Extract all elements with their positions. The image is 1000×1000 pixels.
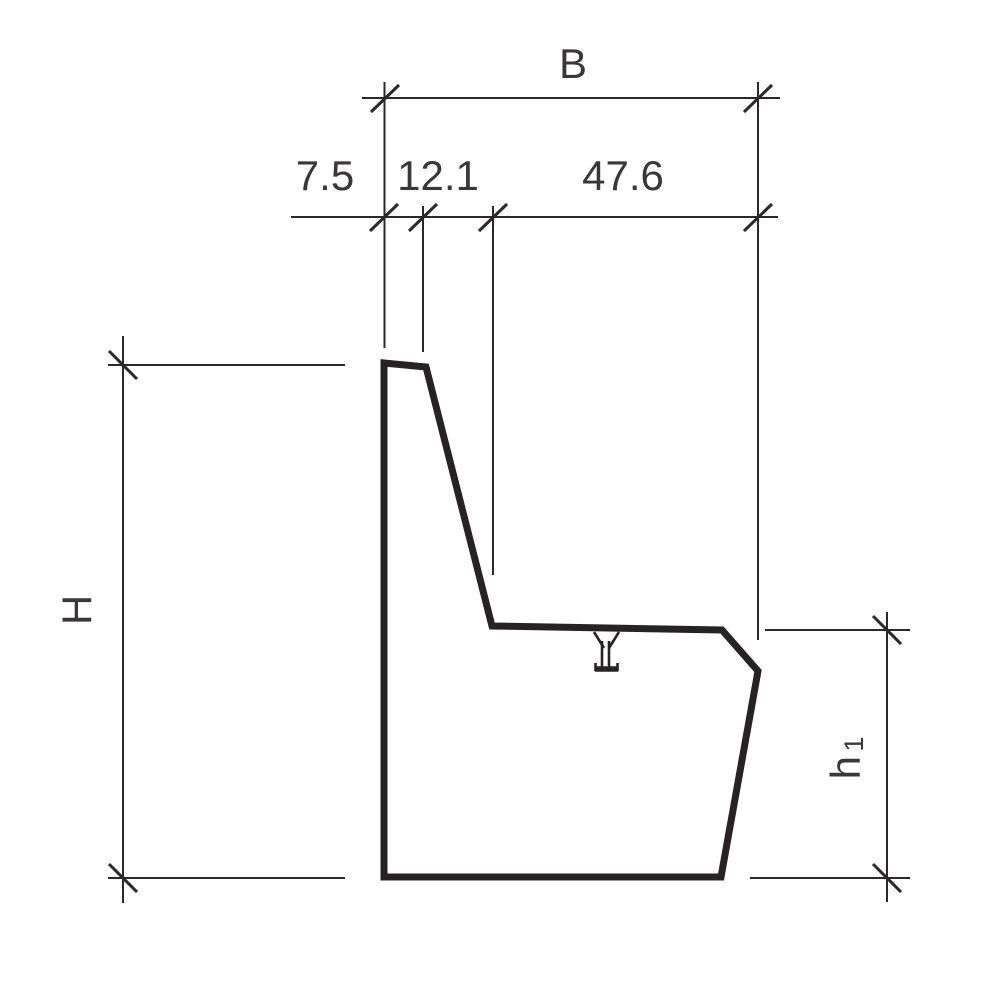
dim-value-segment-1: 7.5 xyxy=(296,152,354,199)
dimension-total-height: H xyxy=(54,336,346,903)
element-profile-group xyxy=(384,363,758,877)
anchor-leg-right-icon xyxy=(609,632,619,648)
dim-value-segment-2: 12.1 xyxy=(397,152,479,199)
anchor-symbol xyxy=(594,632,619,671)
dim-label-seat-height-base: h xyxy=(822,756,869,779)
dim-label-seat-height: h 1 xyxy=(822,737,870,780)
dimension-seat-height: h 1 xyxy=(750,612,910,902)
dim-value-segment-3: 47.6 xyxy=(582,152,664,199)
drawing-canvas: B 7.5 12.1 47.6 H xyxy=(0,0,1000,1000)
profile-outline xyxy=(384,363,758,877)
dimension-segment-chain: 7.5 12.1 47.6 xyxy=(291,152,778,575)
dimension-total-width: B xyxy=(362,40,780,640)
dim-label-total-height: H xyxy=(54,595,101,625)
dim-label-total-width: B xyxy=(559,40,587,87)
technical-drawing: B 7.5 12.1 47.6 H xyxy=(0,0,1000,1000)
dim-label-seat-height-subscript: 1 xyxy=(839,737,869,752)
